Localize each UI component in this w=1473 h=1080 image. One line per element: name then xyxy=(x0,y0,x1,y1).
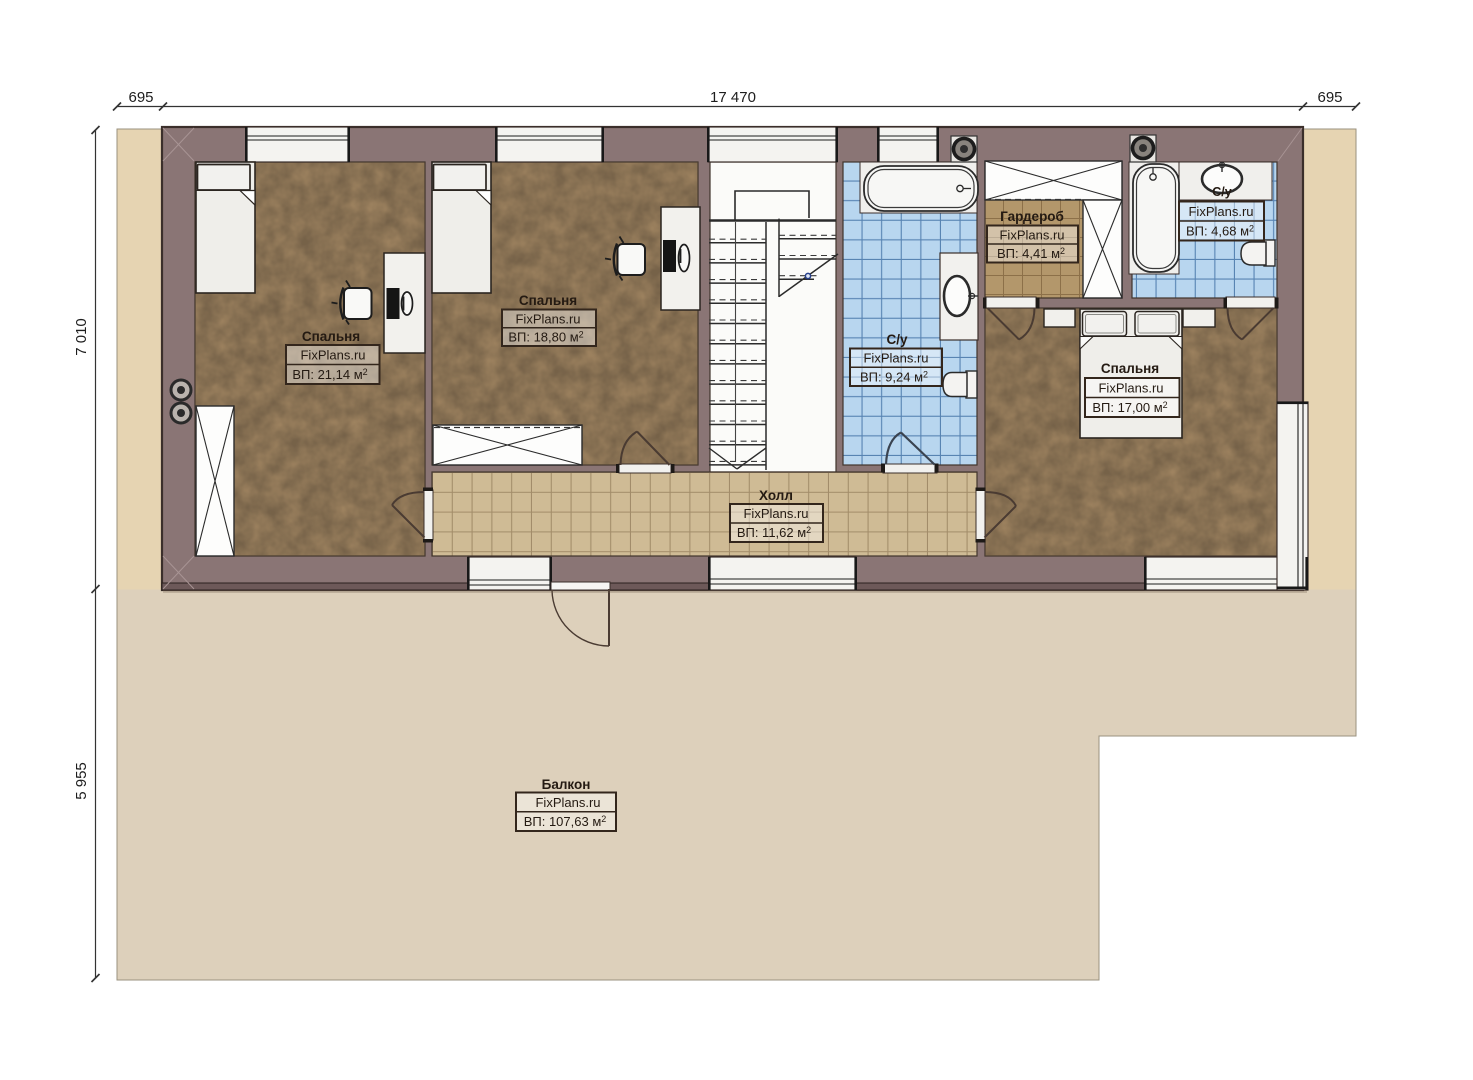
svg-text:С/у: С/у xyxy=(1212,185,1232,199)
svg-text:FixPlans.ru: FixPlans.ru xyxy=(535,795,600,810)
svg-text:ВП: 4,68 м2: ВП: 4,68 м2 xyxy=(1186,223,1254,238)
svg-text:695: 695 xyxy=(1317,89,1342,106)
svg-text:FixPlans.ru: FixPlans.ru xyxy=(1098,380,1163,395)
svg-text:ВП: 4,41 м2: ВП: 4,41 м2 xyxy=(997,246,1065,261)
svg-text:ВП: 9,24 м2: ВП: 9,24 м2 xyxy=(860,369,928,384)
svg-text:ВП: 11,62 м2: ВП: 11,62 м2 xyxy=(737,525,811,540)
svg-text:Спальня: Спальня xyxy=(1101,361,1159,376)
svg-text:FixPlans.ru: FixPlans.ru xyxy=(743,506,808,521)
svg-text:7 010: 7 010 xyxy=(73,318,90,356)
svg-text:Спальня: Спальня xyxy=(302,329,360,344)
svg-text:FixPlans.ru: FixPlans.ru xyxy=(1188,204,1253,219)
svg-text:FixPlans.ru: FixPlans.ru xyxy=(300,347,365,362)
svg-text:695: 695 xyxy=(128,89,153,106)
svg-text:5 955: 5 955 xyxy=(73,762,90,800)
svg-text:FixPlans.ru: FixPlans.ru xyxy=(999,227,1064,242)
svg-text:Холл: Холл xyxy=(759,488,793,503)
svg-text:FixPlans.ru: FixPlans.ru xyxy=(515,311,580,326)
svg-text:С/у: С/у xyxy=(886,332,908,347)
svg-text:ВП: 17,00 м2: ВП: 17,00 м2 xyxy=(1092,400,1167,415)
svg-text:Балкон: Балкон xyxy=(542,777,591,792)
svg-text:Спальня: Спальня xyxy=(519,293,577,308)
svg-text:FixPlans.ru: FixPlans.ru xyxy=(863,351,928,366)
svg-text:Гардероб: Гардероб xyxy=(1000,209,1064,224)
svg-text:ВП: 107,63 м2: ВП: 107,63 м2 xyxy=(524,814,607,829)
svg-text:ВП: 21,14 м2: ВП: 21,14 м2 xyxy=(292,367,367,382)
svg-text:17 470: 17 470 xyxy=(710,89,756,106)
svg-text:ВП: 18,80 м2: ВП: 18,80 м2 xyxy=(508,330,583,345)
